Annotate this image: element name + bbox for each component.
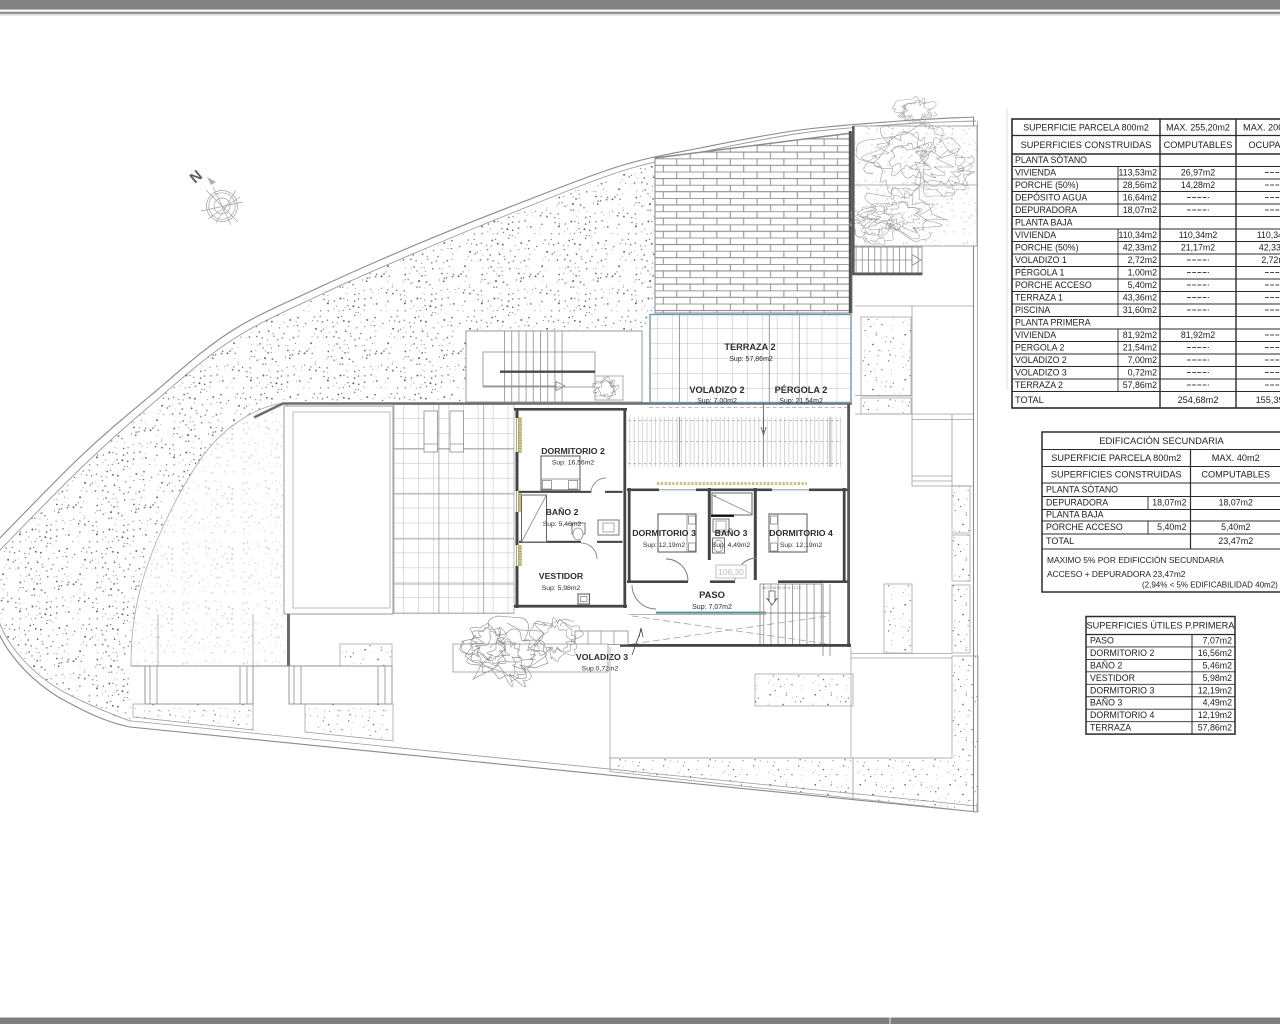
svg-text:1,00m2: 1,00m2 [1128,268,1157,278]
svg-text:TERRAZA 1: TERRAZA 1 [1015,293,1063,303]
svg-text:PLANTA SÓTANO: PLANTA SÓTANO [1046,485,1118,495]
svg-text:81,92m2: 81,92m2 [1181,330,1215,340]
svg-text:VESTIDOR: VESTIDOR [1090,673,1135,683]
svg-text:18,07m2: 18,07m2 [1219,498,1253,508]
svg-text:7,00m2: 7,00m2 [1128,355,1157,365]
svg-text:28,56m2: 28,56m2 [1123,180,1157,190]
svg-text:2,72m2: 2,72m2 [1261,255,1280,265]
svg-text:2,72m2: 2,72m2 [1128,255,1157,265]
svg-text:4,49m2: 4,49m2 [1203,698,1232,708]
svg-text:VOLADIZO 2: VOLADIZO 2 [1015,355,1067,365]
svg-text:Sup: 4,49m2: Sup: 4,49m2 [712,542,751,549]
svg-text:TOTAL: TOTAL [1015,395,1044,405]
svg-text:26,97m2: 26,97m2 [1181,168,1215,178]
svg-text:81,92m2: 81,92m2 [1123,330,1157,340]
svg-text:PASO: PASO [699,589,725,600]
svg-text:16,64m2: 16,64m2 [1123,193,1157,203]
svg-text:31,60m2: 31,60m2 [1123,305,1157,315]
svg-text:5,40m2: 5,40m2 [1128,280,1157,290]
svg-text:BAÑO 3: BAÑO 3 [1090,698,1122,708]
svg-text:COMPUTABLES: COMPUTABLES [1164,140,1233,150]
svg-text:110,34m2: 110,34m2 [1257,230,1280,240]
svg-text:BAÑO 2: BAÑO 2 [546,507,579,517]
svg-text:DORMITORIO 3: DORMITORIO 3 [632,528,696,538]
svg-text:DORMITORIO 3: DORMITORIO 3 [1090,685,1154,695]
svg-text:MAX. 200,00m2: MAX. 200,00m2 [1243,123,1280,133]
svg-text:TERRAZA 2: TERRAZA 2 [724,342,775,352]
svg-text:254,68m2: 254,68m2 [1178,395,1219,405]
svg-text:PLANTA BAJA: PLANTA BAJA [1046,510,1104,520]
svg-text:106,30: 106,30 [718,567,744,577]
svg-text:VOLADIZO 1: VOLADIZO 1 [1015,255,1067,265]
svg-text:MAXIMO 5% POR EDIFICCIÓN SECUN: MAXIMO 5% POR EDIFICCIÓN SECUNDARIA [1047,555,1224,565]
svg-text:7,07m2: 7,07m2 [1203,635,1232,645]
svg-text:0,72m2: 0,72m2 [1128,368,1157,378]
svg-text:SUPERFICIE PARCELA 800m2: SUPERFICIE PARCELA 800m2 [1023,123,1149,133]
svg-text:PLANTA SÓTANO: PLANTA SÓTANO [1015,155,1087,165]
svg-text:TOTAL: TOTAL [1046,536,1074,546]
svg-text:18,07m2: 18,07m2 [1152,498,1186,508]
svg-text:43,36m2: 43,36m2 [1123,293,1157,303]
svg-text:113,53m2: 113,53m2 [1119,168,1158,178]
svg-text:Sup: 5,98m2: Sup: 5,98m2 [542,585,581,592]
svg-text:21,54m2: 21,54m2 [1123,343,1157,353]
svg-text:PORCHE (50%): PORCHE (50%) [1015,243,1079,253]
svg-text:42,33m2: 42,33m2 [1123,243,1157,253]
svg-text:PASO: PASO [1090,635,1114,645]
svg-text:42,33m2: 42,33m2 [1259,243,1280,253]
svg-text:PISCINA: PISCINA [1015,305,1050,315]
svg-text:Sup: 12,19m2: Sup: 12,19m2 [643,542,686,549]
svg-text:VESTIDOR: VESTIDOR [539,571,584,581]
svg-text:VIVIENDA: VIVIENDA [1015,330,1056,340]
svg-text:PÉRGOLA 1: PÉRGOLA 1 [1015,268,1064,278]
svg-text:155,39m2: 155,39m2 [1256,395,1280,405]
svg-text:SUPERFICIES CONSTRUIDAS: SUPERFICIES CONSTRUIDAS [1021,140,1152,150]
svg-text:PERGOLA 2: PERGOLA 2 [1015,343,1064,353]
svg-text:Sup: 12,19m2: Sup: 12,19m2 [780,542,823,549]
svg-text:SUPERFICIE PARCELA 800m2: SUPERFICIE PARCELA 800m2 [1051,453,1181,463]
svg-text:Sup: 5,46m2: Sup: 5,46m2 [543,521,582,528]
svg-text:110,34m2: 110,34m2 [1179,230,1218,240]
svg-text:57,86m2: 57,86m2 [1198,723,1232,733]
svg-text:VOLADIZO 3: VOLADIZO 3 [576,652,628,662]
svg-text:DEPÓSITO AGUA: DEPÓSITO AGUA [1015,193,1087,203]
svg-text:18,07m2: 18,07m2 [1123,205,1157,215]
svg-text:Sup.0,72m2: Sup.0,72m2 [582,666,619,673]
svg-text:14,28m2: 14,28m2 [1181,180,1215,190]
svg-text:VIVIENDA: VIVIENDA [1015,230,1056,240]
svg-text:VOLADIZO 3: VOLADIZO 3 [1015,368,1067,378]
svg-text:ACCESO + DEPURADORA 23,47m2: ACCESO + DEPURADORA 23,47m2 [1047,569,1186,579]
svg-text:12,19m2: 12,19m2 [1198,710,1232,720]
svg-text:5,40m2: 5,40m2 [1157,522,1186,532]
svg-text:5,40m2: 5,40m2 [1221,522,1250,532]
svg-text:Sup: 16,56m2: Sup: 16,56m2 [552,460,595,467]
svg-text:06 07 08 09 10 11 12 13: 06 07 08 09 10 11 12 13 [762,586,801,590]
svg-text:Sup: 7,07m2: Sup: 7,07m2 [692,604,732,611]
svg-text:PORCHE ACCESO: PORCHE ACCESO [1046,522,1123,532]
svg-text:PLANTA PRIMERA: PLANTA PRIMERA [1015,318,1091,328]
svg-text:VIVIENDA: VIVIENDA [1015,168,1056,178]
svg-text:EDIFICACIÓN SECUNDARIA: EDIFICACIÓN SECUNDARIA [1099,435,1224,446]
svg-text:PORCHE (50%): PORCHE (50%) [1015,180,1079,190]
svg-text:21,17m2: 21,17m2 [1181,243,1215,253]
svg-text:DORMITORIO 4: DORMITORIO 4 [1090,710,1154,720]
svg-text:DORMITORIO 2: DORMITORIO 2 [541,446,605,456]
svg-text:16,56m2: 16,56m2 [1198,648,1232,658]
svg-text:110,34m2: 110,34m2 [1119,230,1158,240]
svg-text:COMPUTABLES: COMPUTABLES [1201,470,1270,480]
svg-text:Sup: 21,54m2: Sup: 21,54m2 [779,398,823,405]
svg-text:5,98m2: 5,98m2 [1203,673,1232,683]
svg-text:57,86m2: 57,86m2 [1123,380,1157,390]
svg-text:PÉRGOLA 2: PÉRGOLA 2 [775,384,828,395]
svg-text:BAÑO 3: BAÑO 3 [715,528,748,538]
svg-text:BAÑO 2: BAÑO 2 [1090,660,1122,670]
svg-text:SUPERFICIES ÚTILES P.PRIMERA: SUPERFICIES ÚTILES P.PRIMERA [1087,621,1236,631]
svg-text:TERRAZA 2: TERRAZA 2 [1015,380,1063,390]
svg-text:5,46m2: 5,46m2 [1203,660,1232,670]
svg-text:MAX. 40m2: MAX. 40m2 [1212,453,1260,463]
svg-text:MAX. 255,20m2: MAX. 255,20m2 [1166,123,1230,133]
svg-text:SUPERFICIES CONSTRUIDAS: SUPERFICIES CONSTRUIDAS [1051,470,1182,480]
svg-text:OCUPACIÓN: OCUPACIÓN [1249,140,1280,150]
svg-text:DEPURADORA: DEPURADORA [1015,205,1077,215]
svg-text:Sup: 57,86m2: Sup: 57,86m2 [729,356,773,363]
svg-text:DORMITORIO 4: DORMITORIO 4 [769,528,833,538]
svg-text:Sup: 7,00m2: Sup: 7,00m2 [697,398,737,405]
svg-text:DORMITORIO 2: DORMITORIO 2 [1090,648,1154,658]
svg-text:(2,94% < 5% EDIFICABILIDAD 40m: (2,94% < 5% EDIFICABILIDAD 40m2) [1142,581,1278,590]
svg-text:12,19m2: 12,19m2 [1198,685,1232,695]
svg-text:PORCHE ACCESO: PORCHE ACCESO [1015,280,1092,290]
svg-text:23,47m2: 23,47m2 [1218,536,1253,546]
svg-text:VOLADIZO 2: VOLADIZO 2 [689,385,744,395]
svg-text:DEPURADORA: DEPURADORA [1046,498,1108,508]
svg-text:PLANTA BAJA: PLANTA BAJA [1015,218,1073,228]
svg-text:TERRAZA: TERRAZA [1090,723,1131,733]
